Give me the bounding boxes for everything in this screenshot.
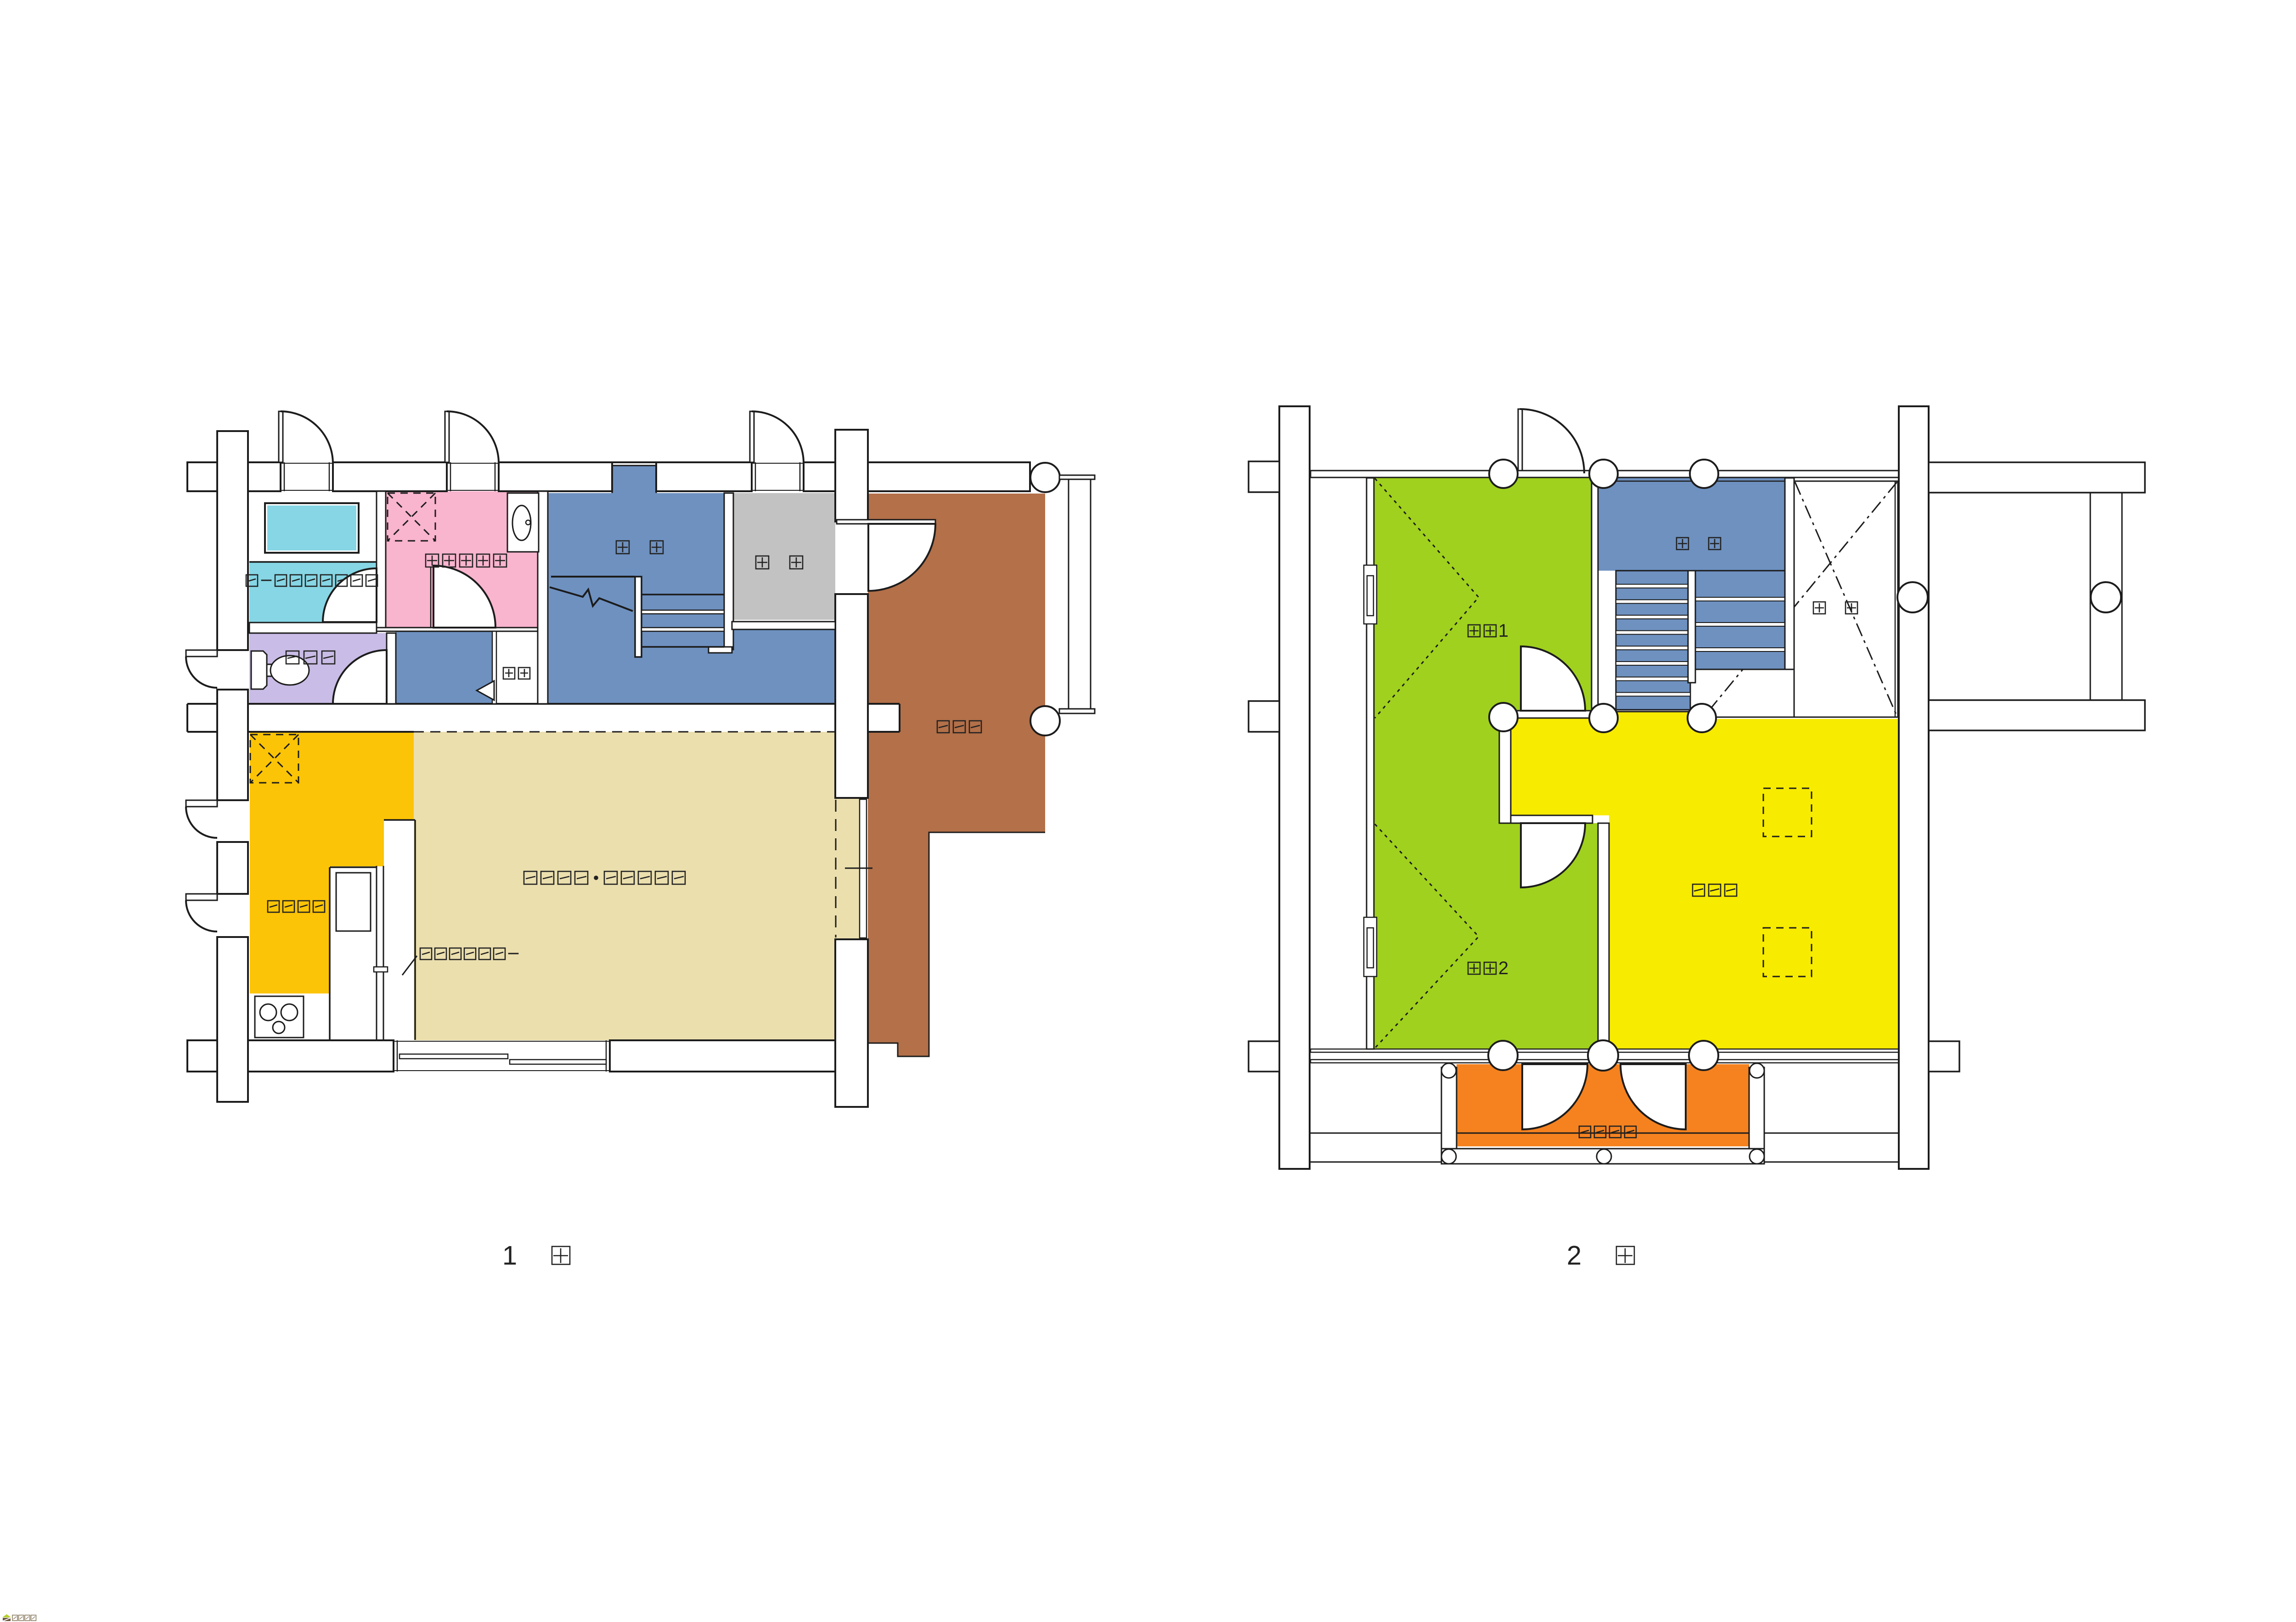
svg-text:1: 1 (502, 1241, 517, 1271)
svg-text:2: 2 (1567, 1241, 1581, 1271)
svg-text:1: 1 (1498, 621, 1508, 641)
svg-text:2: 2 (1498, 958, 1508, 978)
